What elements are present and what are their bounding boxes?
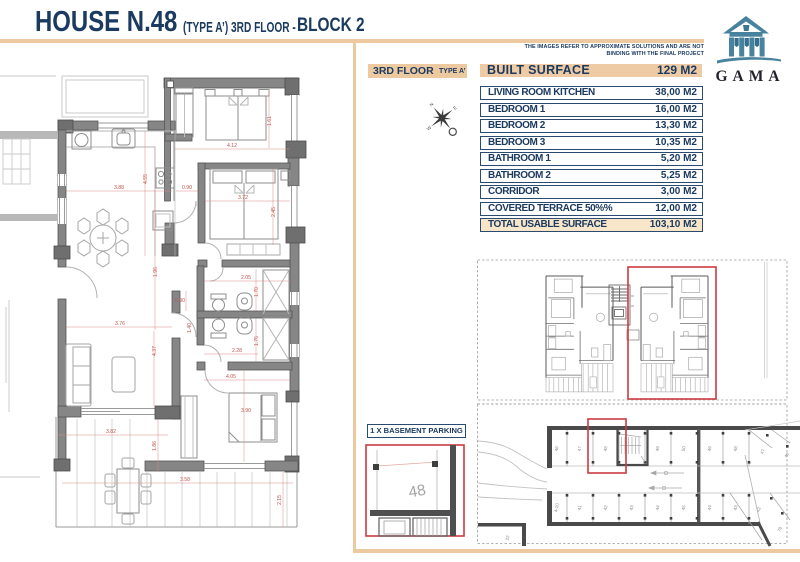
svg-text:0.90: 0.90 [182,185,192,191]
svg-text:3.90: 3.90 [241,408,251,414]
svg-text:78: 78 [776,526,783,533]
svg-text:47: 47 [759,448,766,455]
svg-text:N: N [429,102,435,108]
svg-text:3.72: 3.72 [238,195,248,201]
svg-text:1.76: 1.76 [254,336,260,346]
svg-text:4.55: 4.55 [143,174,149,184]
svg-text:2.05: 2.05 [241,275,251,281]
svg-text:3.58: 3.58 [180,477,190,483]
svg-text:43: 43 [629,504,635,510]
svg-text:4-10: 4-10 [553,502,560,512]
svg-text:44: 44 [707,504,713,510]
svg-text:GAMA: GAMA [715,68,784,85]
svg-text:48: 48 [733,445,739,451]
svg-text:2.15: 2.15 [277,495,283,505]
svg-text:W: W [426,125,433,132]
svg-text:3.82: 3.82 [106,429,116,435]
svg-text:46: 46 [783,451,790,458]
svg-text:E: E [452,105,458,111]
svg-text:48: 48 [407,482,427,502]
svg-text:1.96: 1.96 [153,267,159,277]
svg-text:2.45: 2.45 [271,207,277,217]
svg-text:44: 44 [655,504,661,510]
svg-text:48: 48 [603,445,609,451]
svg-text:41: 41 [577,504,583,510]
svg-text:4.37: 4.37 [152,346,158,356]
svg-text:45: 45 [681,504,687,510]
svg-text:42: 42 [603,504,609,510]
svg-text:1.86: 1.86 [152,441,158,451]
svg-text:2.28: 2.28 [232,348,242,354]
svg-text:43: 43 [733,504,739,510]
svg-text:49: 49 [707,445,713,451]
svg-text:1.61: 1.61 [267,116,273,126]
svg-text:4.05: 4.05 [226,374,236,380]
svg-text:46: 46 [554,445,560,451]
svg-text:1.70: 1.70 [254,287,260,297]
svg-text:49: 49 [655,445,661,451]
svg-text:22: 22 [505,535,510,541]
svg-text:47: 47 [577,445,583,451]
svg-text:1.40: 1.40 [187,323,193,333]
svg-text:4.12: 4.12 [227,143,237,149]
svg-text:50: 50 [681,445,687,451]
svg-text:3.76: 3.76 [115,321,125,327]
svg-text:3.88: 3.88 [114,185,124,191]
svg-text:0.90: 0.90 [175,298,185,304]
